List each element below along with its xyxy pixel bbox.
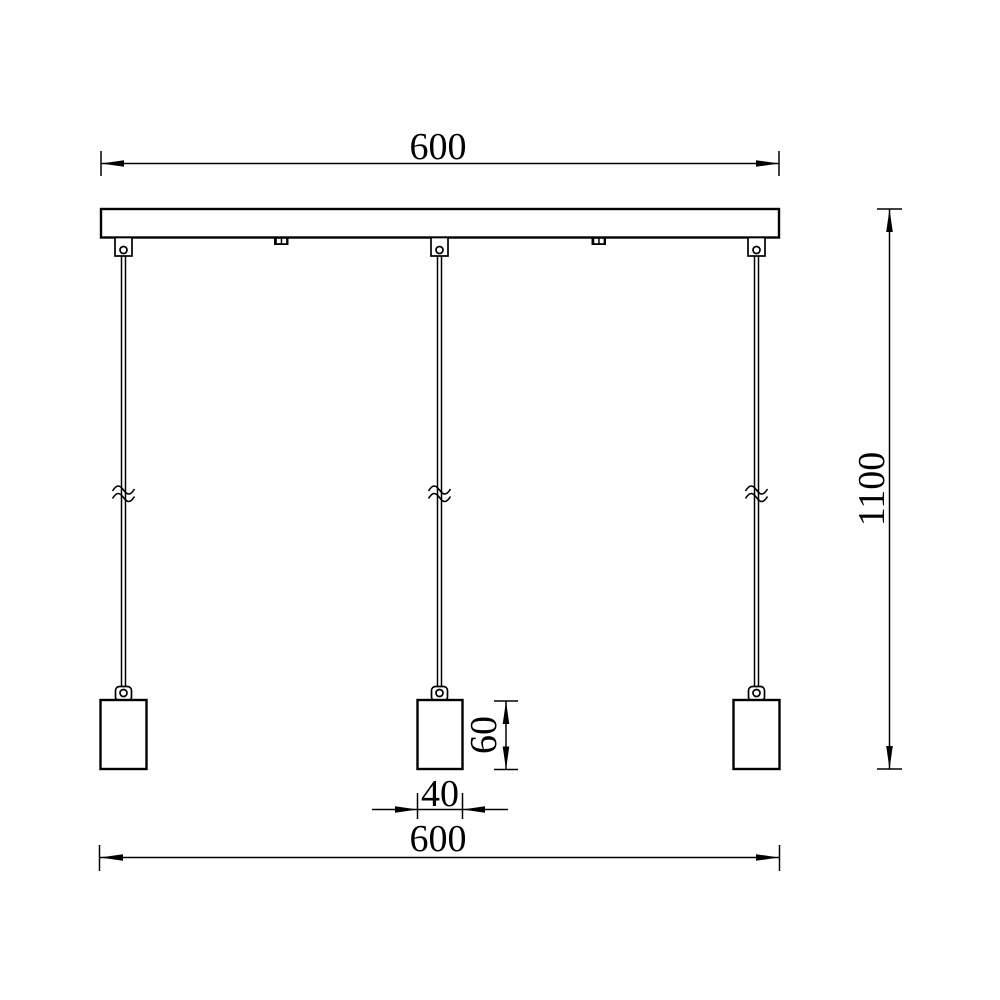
dimension-top-width: 600 [101, 126, 779, 176]
overall-height-label: 1100 [851, 452, 893, 527]
bottom-width-label: 600 [410, 818, 467, 860]
dimension-shade-width: 40 [372, 773, 508, 819]
break-symbol-right [746, 486, 768, 502]
arrow-right-icon [756, 160, 779, 167]
shade-height-label: 60 [463, 716, 505, 754]
canopy-bar-outline [101, 209, 779, 238]
lamp-shade-middle [418, 700, 463, 769]
arrow-right-icon [756, 854, 779, 861]
technical-drawing-canvas: 600 1100 60 40 600 [0, 0, 1000, 1000]
break-symbol-middle [429, 486, 451, 502]
pendant-middle [418, 238, 463, 770]
suspension-cord-right [746, 256, 768, 688]
arrow-down-icon [886, 746, 893, 769]
cord-grip-top-middle [431, 238, 448, 257]
cord-grip-top-right [748, 238, 765, 257]
suspension-cord-left [113, 256, 135, 688]
lamp-shade-left [101, 700, 147, 769]
suspension-cord-middle [429, 256, 451, 688]
pendant-right [734, 238, 780, 770]
shade-width-label: 40 [421, 773, 459, 815]
mounting-nub-left [274, 237, 289, 246]
cord-grip-top-left [115, 238, 132, 257]
mounting-nub-right [592, 237, 607, 246]
dimension-overall-height: 1100 [851, 209, 902, 769]
top-width-label: 600 [410, 126, 467, 168]
break-symbol-left [113, 486, 135, 502]
arrow-left-icon [463, 806, 486, 813]
dimension-shade-height: 60 [463, 701, 518, 770]
dimension-bottom-width: 600 [100, 818, 780, 871]
arrow-right-icon [395, 806, 418, 813]
arrow-up-icon [886, 209, 893, 232]
arrow-left-icon [100, 854, 123, 861]
lamp-shade-right [734, 700, 780, 769]
pendant-left [101, 238, 147, 770]
pendant-light-technical-drawing: 600 1100 60 40 600 [0, 0, 1000, 1000]
arrow-left-icon [101, 160, 124, 167]
